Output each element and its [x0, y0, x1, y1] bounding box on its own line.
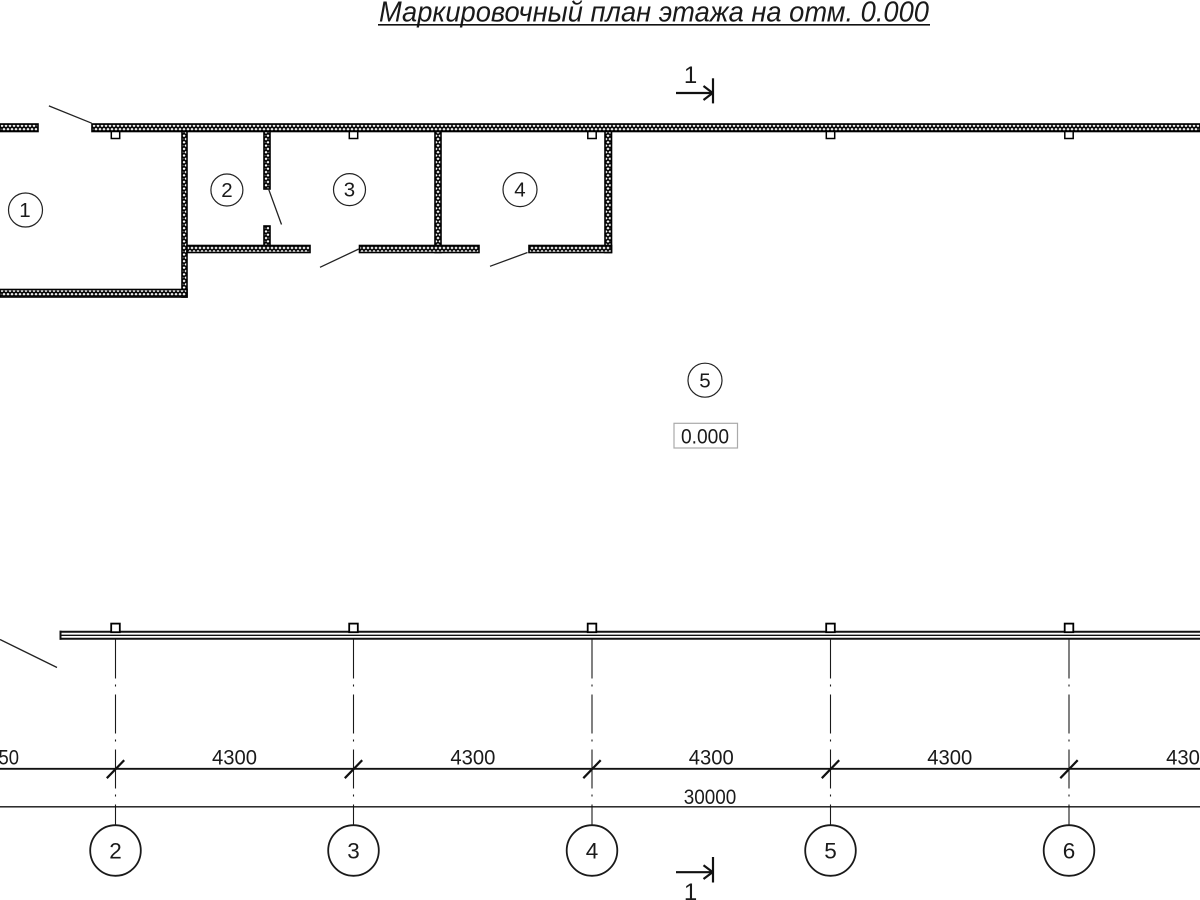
svg-text:1: 1: [684, 879, 697, 900]
svg-text:4300: 4300: [450, 746, 495, 769]
svg-text:4300: 4300: [689, 746, 734, 769]
svg-text:0.000: 0.000: [681, 425, 729, 449]
svg-text:3: 3: [347, 839, 360, 864]
svg-text:4300: 4300: [1166, 746, 1200, 769]
svg-text:3: 3: [344, 179, 355, 202]
svg-text:4300: 4300: [212, 746, 257, 769]
svg-text:5: 5: [824, 839, 837, 864]
svg-text:4: 4: [514, 179, 525, 202]
svg-text:4300: 4300: [927, 746, 972, 769]
svg-text:4: 4: [586, 839, 599, 864]
svg-text:30000: 30000: [684, 786, 737, 809]
svg-text:1: 1: [684, 62, 697, 89]
svg-text:6: 6: [1063, 839, 1076, 864]
svg-text:2: 2: [109, 839, 122, 864]
svg-text:2: 2: [221, 179, 232, 202]
svg-text:5: 5: [699, 369, 710, 392]
svg-text:50: 50: [0, 746, 19, 769]
svg-text:1: 1: [19, 199, 30, 222]
